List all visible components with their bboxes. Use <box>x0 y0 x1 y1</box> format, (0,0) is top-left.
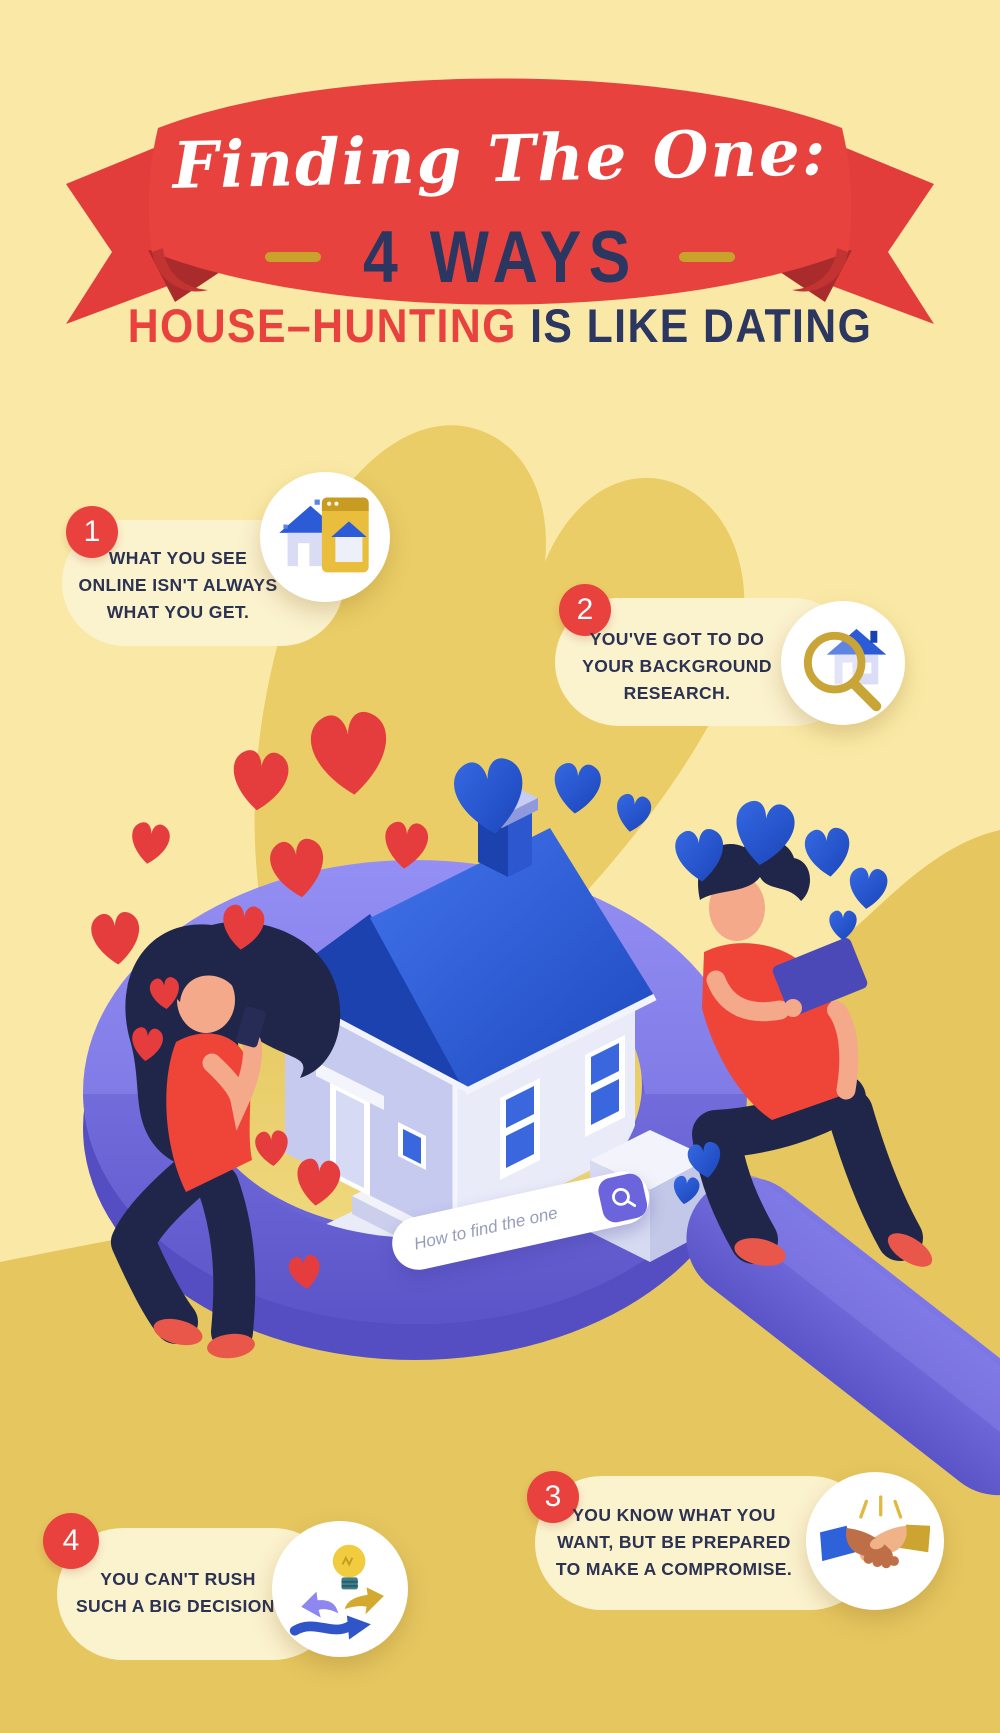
house-browser-icon <box>273 485 377 589</box>
point-text-line: YOU CAN'T RUSH <box>66 1566 290 1593</box>
magnifier-icon <box>607 1183 638 1214</box>
gold-dash-right-icon <box>679 252 735 262</box>
point-text-line: YOU KNOW WHAT YOU <box>540 1502 808 1529</box>
point-4-badge: 4 <box>43 1513 99 1569</box>
gold-dash-left-icon <box>265 252 321 262</box>
point-4-text: YOU CAN'T RUSH SUCH A BIG DECISION. <box>66 1566 290 1620</box>
search-button[interactable] <box>596 1171 650 1225</box>
point-text-line: ONLINE ISN'T ALWAYS <box>58 572 298 599</box>
point-text-line: RESEARCH. <box>552 680 802 707</box>
point-2-text: YOU'VE GOT TO DO YOUR BACKGROUND RESEARC… <box>552 626 802 707</box>
point-text-line: YOU'VE GOT TO DO <box>552 626 802 653</box>
point-text-line: TO MAKE A COMPROMISE. <box>540 1556 808 1583</box>
ways-heading: 4 WAYS <box>0 218 1000 296</box>
subtitle: HOUSE–HUNTINGIS LIKE DATING <box>25 299 975 354</box>
point-text-line: YOUR BACKGROUND <box>552 653 802 680</box>
point-4-icon-circle <box>272 1521 408 1657</box>
handshake-icon <box>820 1486 930 1596</box>
point-1-text: WHAT YOU SEE ONLINE ISN'T ALWAYS WHAT YO… <box>58 545 298 626</box>
subtitle-is-like-dating: IS LIKE DATING <box>530 299 872 353</box>
infographic-poster: Finding The One: 4 WAYS HOUSE–HUNTINGIS … <box>0 0 1000 1733</box>
point-1-icon-circle <box>260 472 390 602</box>
house-magnifier-icon <box>793 613 892 712</box>
lightbulb-arrows-icon <box>286 1535 395 1644</box>
point-3-text: YOU KNOW WHAT YOU WANT, BUT BE PREPARED … <box>540 1502 808 1583</box>
point-text-line: WANT, BUT BE PREPARED <box>540 1529 808 1556</box>
subtitle-house-hunting: HOUSE–HUNTING <box>128 299 517 353</box>
point-text-line: SUCH A BIG DECISION. <box>66 1593 290 1620</box>
ways-label: 4 WAYS <box>363 215 638 299</box>
point-2-icon-circle <box>781 601 905 725</box>
point-text-line: WHAT YOU GET. <box>58 599 298 626</box>
point-3-icon-circle <box>806 1472 944 1610</box>
